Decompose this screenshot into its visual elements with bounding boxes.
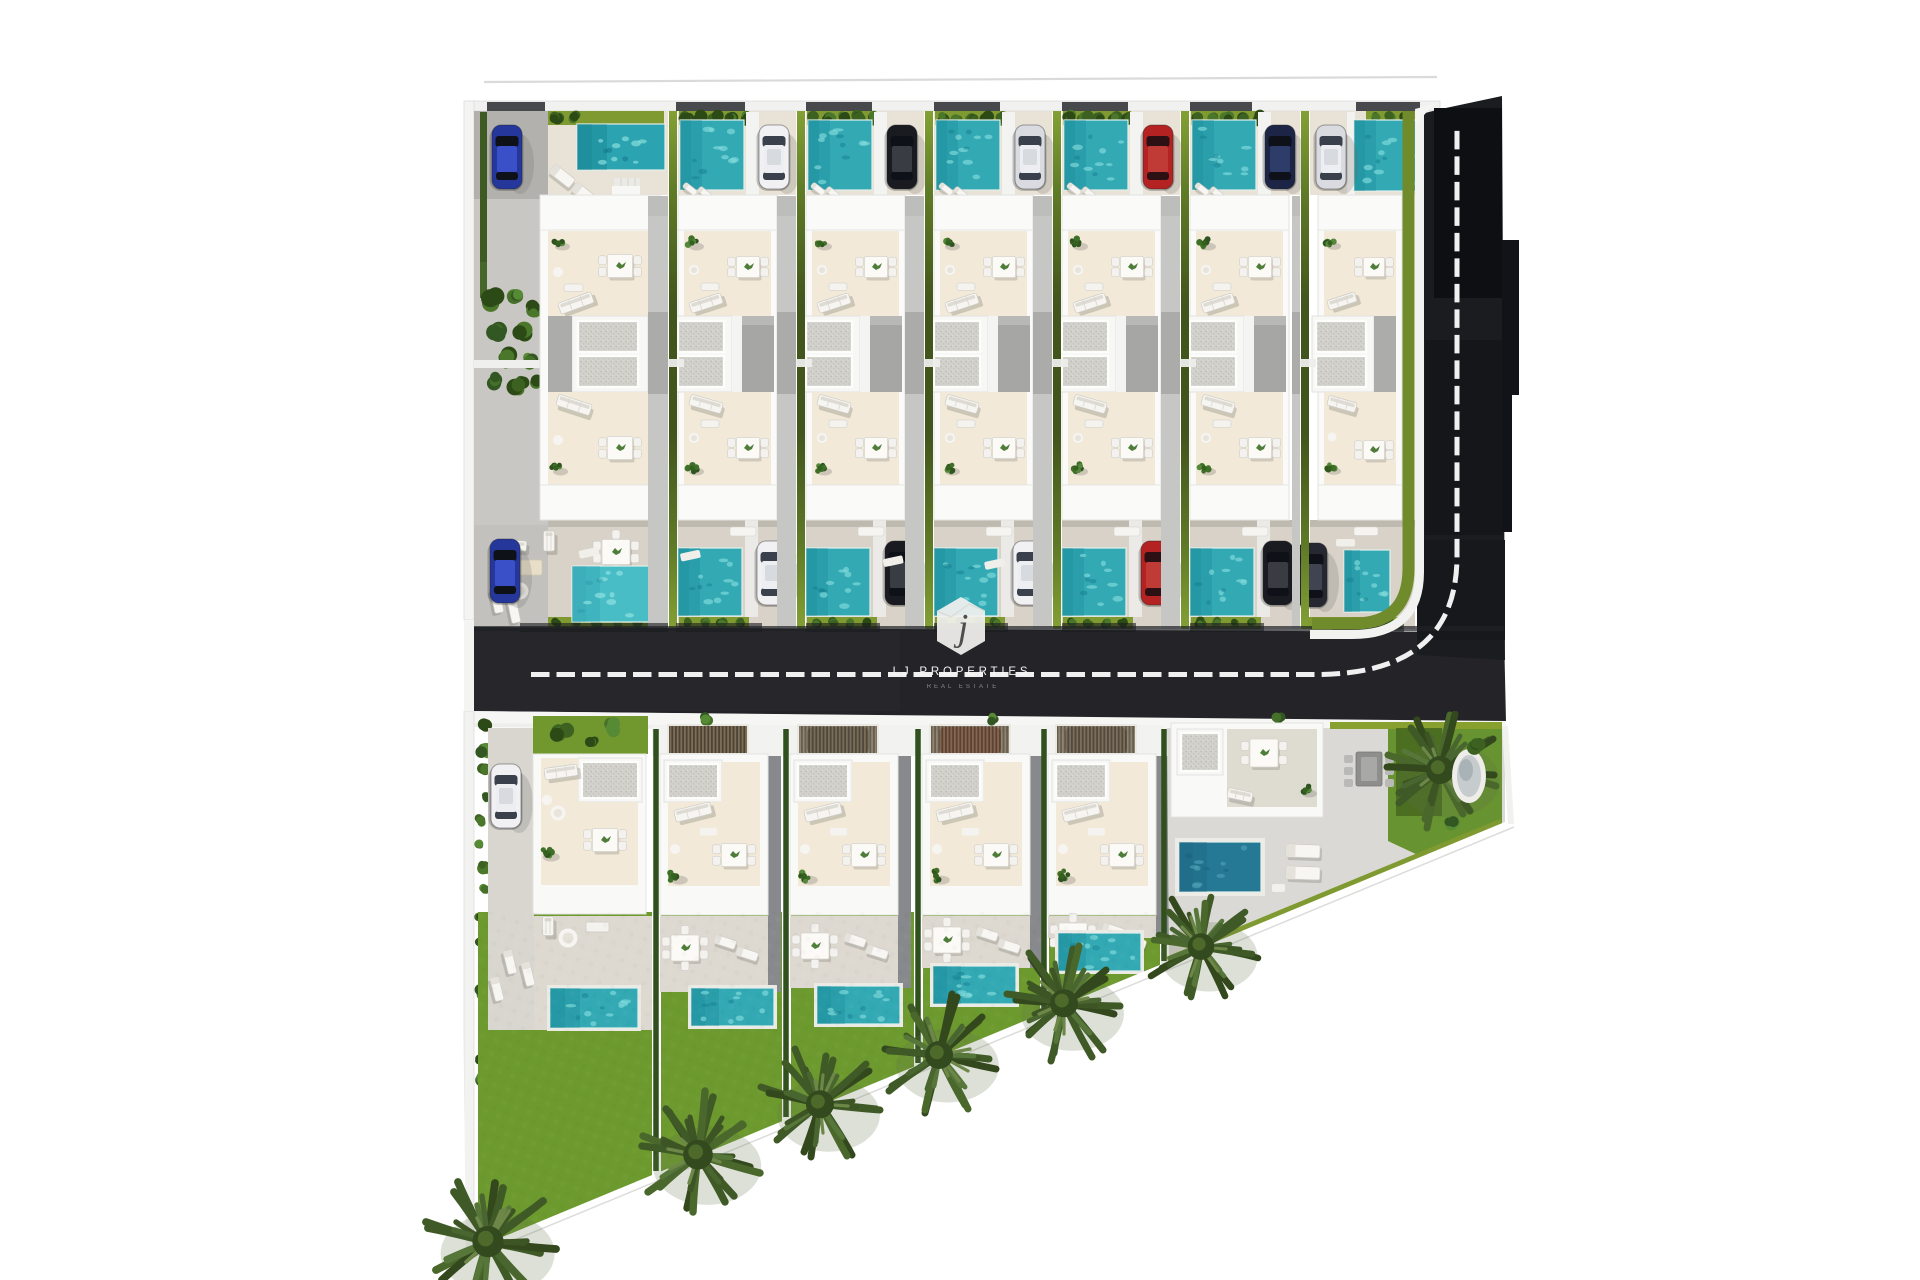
svg-text:REAL ESTATE: REAL ESTATE [927,684,1000,690]
svg-text:LJ PROPERTIES: LJ PROPERTIES [893,666,1032,678]
